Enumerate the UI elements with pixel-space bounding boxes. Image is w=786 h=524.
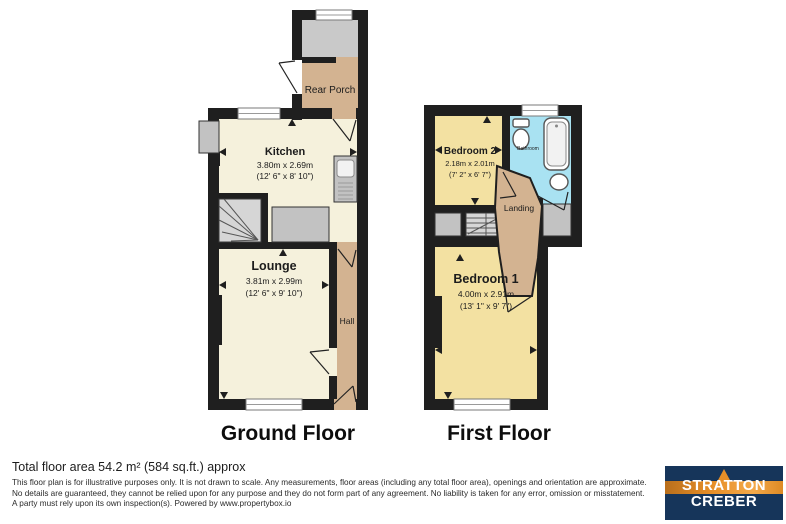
room-dim-bedroom-2-metric: 2.18m x 2.01m [445,159,495,168]
cupboard [435,213,461,236]
room-label-kitchen: Kitchen [265,146,306,158]
chimney-breast [213,295,222,345]
window [246,399,302,410]
total-floor-area: Total floor area 54.2 m² (584 sq.ft.) ap… [12,460,660,474]
room-label-bedroom-1: Bedroom 1 [453,272,518,286]
room-dim-kitchen-metric: 3.80m x 2.69m [257,160,313,170]
door-opening [329,348,337,376]
room-dim-bedroom-2-imperial: (7' 2" x 6' 7") [449,170,491,179]
floor-plan-first: Bedroom 2 2.18m x 2.01m (7' 2" x 6' 7") … [424,105,582,445]
room-label-hall: Hall [340,316,355,326]
disclaimer: This floor plan is for illustrative purp… [12,478,648,510]
porch-floor [302,57,358,108]
logo-text-stratton: STRATTON [665,477,783,494]
wall [213,152,220,166]
staircase-ground [219,199,261,242]
wall [424,241,435,410]
floorplan-drawing: Rear Porch Kitchen 3.80m x 2.69m (12' 6"… [0,0,786,460]
floorplan-page: Rear Porch Kitchen 3.80m x 2.69m (12' 6"… [0,0,786,524]
door-opening [332,108,356,119]
bathtub-fixture [544,118,569,170]
wall [571,105,582,247]
wall [424,105,435,247]
window [316,10,352,20]
cupboard [543,204,571,236]
kitchen-sink-fixture [334,156,357,202]
basin-fixture [550,174,568,190]
room-dim-lounge-imperial: (12' 6" x 9' 10") [245,288,302,298]
cupboard [272,207,329,242]
wall [502,116,510,172]
room-label-landing: Landing [504,203,535,213]
porch-store-area [302,20,358,57]
chimney-breast [435,296,442,348]
room-dim-bedroom-1-imperial: (13' 1" x 9' 7") [460,301,512,311]
window [454,399,510,410]
floor-label-ground: Ground Floor [221,422,355,445]
wall [208,242,337,249]
porch-door-opening [292,60,302,94]
window [238,108,280,119]
wall [537,241,548,410]
room-label-rear-porch: Rear Porch [305,85,356,96]
room-dim-kitchen-imperial: (12' 6" x 8' 10") [256,171,313,181]
room-label-bathroom: Bathroom [517,146,539,152]
room-label-lounge: Lounge [251,259,296,273]
room-dim-lounge-metric: 3.81m x 2.99m [246,276,302,286]
floor-plan-ground: Rear Porch Kitchen 3.80m x 2.69m (12' 6"… [199,10,368,445]
logo-text-creber: CREBER [665,493,783,510]
brand-logo: STRATTON CREBER [665,466,783,520]
toilet-fixture [513,119,529,149]
wall [261,199,268,242]
room-label-bedroom-2: Bedroom 2 [444,146,497,157]
wall [302,57,336,63]
wall [461,213,466,236]
window [522,105,558,116]
footer: Total floor area 54.2 m² (584 sq.ft.) ap… [12,460,660,510]
floor-label-first: First Floor [447,422,551,445]
room-dim-bedroom-1-metric: 4.00m x 2.91m [458,289,514,299]
cupboard [199,121,219,153]
wall [358,10,368,120]
wall [357,108,368,410]
wall [219,193,268,199]
